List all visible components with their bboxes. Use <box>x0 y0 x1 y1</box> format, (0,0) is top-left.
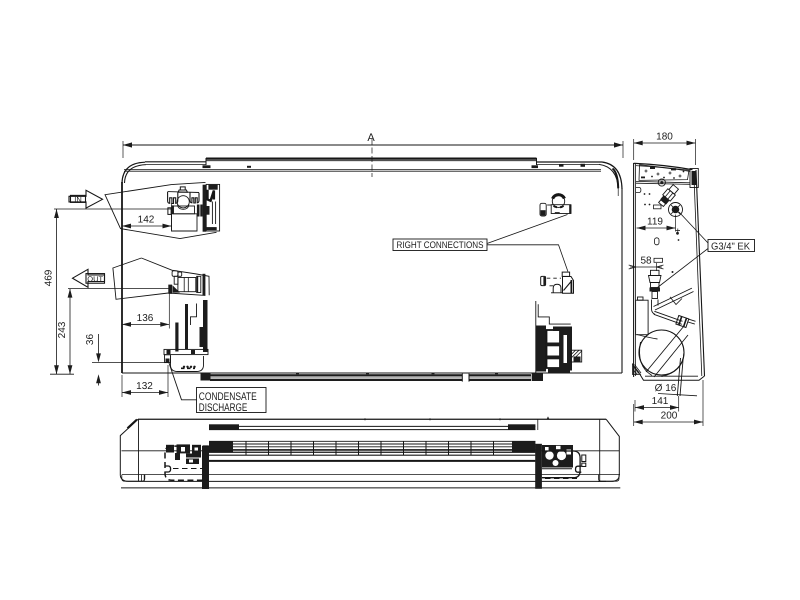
svg-text:58: 58 <box>640 256 652 267</box>
svg-text:119: 119 <box>647 217 663 228</box>
svg-text:132: 132 <box>136 381 153 392</box>
svg-text:DISCHARGE: DISCHARGE <box>199 402 248 414</box>
svg-text:243: 243 <box>57 321 68 338</box>
svg-text:200: 200 <box>661 411 678 422</box>
svg-text:469: 469 <box>44 269 55 286</box>
svg-text:141: 141 <box>652 396 669 407</box>
svg-text:RIGHT CONNECTIONS: RIGHT CONNECTIONS <box>397 240 484 251</box>
svg-text:OUT: OUT <box>87 275 103 284</box>
svg-text:Ø 16: Ø 16 <box>655 383 677 394</box>
svg-text:142: 142 <box>138 215 155 226</box>
svg-text:IN: IN <box>74 195 82 204</box>
svg-text:A: A <box>367 132 375 144</box>
svg-text:G3/4" EK: G3/4" EK <box>711 241 750 252</box>
svg-text:36: 36 <box>85 334 96 346</box>
svg-text:180: 180 <box>656 132 673 143</box>
svg-text:136: 136 <box>137 313 154 324</box>
